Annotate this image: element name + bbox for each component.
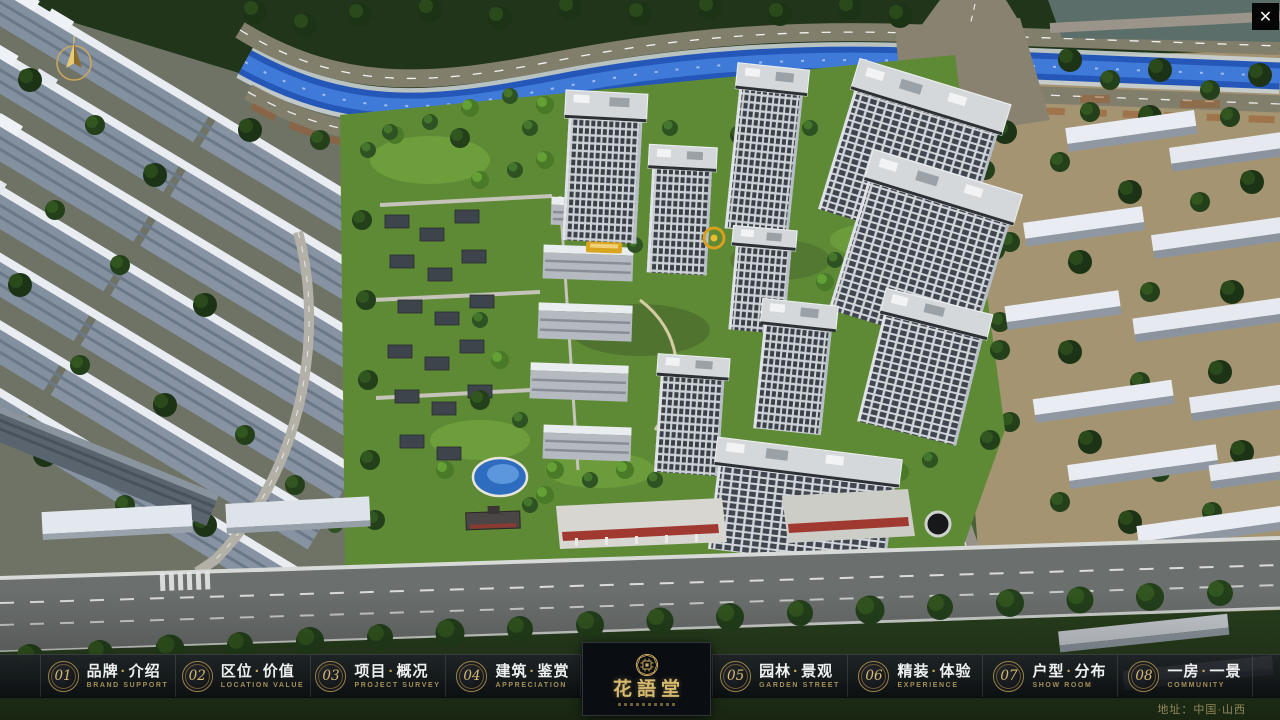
- menu-number-badge: 06: [858, 661, 889, 692]
- menu-number-badge: 01: [48, 661, 79, 692]
- menu-label-right: 概况: [396, 663, 428, 680]
- logo-title: 花語堂: [608, 679, 685, 699]
- menu-item-decoration[interactable]: 06 精装·体验 EXPERIENCE: [847, 655, 982, 697]
- menu-item-text: 精装·体验 EXPERIENCE: [897, 664, 971, 689]
- menu-label: 项目·概况: [354, 664, 428, 680]
- presentation-window: ✕ 01 品牌·介绍 BRAND SUPPORT 02 区位·价值 LOCATI…: [0, 0, 1280, 720]
- seal-icon: [635, 653, 659, 677]
- menu-label-left: 户型: [1032, 663, 1064, 680]
- menu-number-badge: 05: [720, 661, 751, 692]
- menu-item-text: 一房·一景 COMMUNITY: [1167, 664, 1241, 689]
- compass[interactable]: [50, 34, 98, 88]
- menu-separator: ·: [1065, 663, 1075, 680]
- menu-item-garden[interactable]: 05 园林·景观 GARDEN STREET: [712, 655, 847, 697]
- menu-number: 06: [865, 668, 882, 684]
- menu-label: 品牌·介绍: [87, 664, 161, 680]
- menu-number-badge: 04: [456, 661, 487, 692]
- logo-slot: 花語堂: [580, 655, 712, 697]
- menu-label-right: 鉴赏: [538, 663, 570, 680]
- menu-label-right: 体验: [940, 663, 972, 680]
- menu-separator: ·: [791, 663, 801, 680]
- menu-number-badge: 02: [182, 661, 213, 692]
- close-button[interactable]: ✕: [1252, 3, 1279, 30]
- menu-number: 01: [54, 668, 71, 684]
- menu-separator: ·: [119, 663, 129, 680]
- menu-sublabel: COMMUNITY: [1167, 682, 1225, 689]
- menu-item-architecture[interactable]: 04 建筑·鉴赏 APPRECIATION: [445, 655, 580, 697]
- menu-number: 07: [1000, 668, 1017, 684]
- menu-label-right: 分布: [1075, 663, 1107, 680]
- menu-label: 区位·价值: [221, 664, 295, 680]
- menu-separator: ·: [253, 663, 263, 680]
- address-label: 地址：中国·山西: [1157, 701, 1246, 717]
- menu-sublabel: GARDEN STREET: [759, 682, 840, 689]
- close-icon: ✕: [1259, 7, 1272, 26]
- menu-sublabel: EXPERIENCE: [897, 682, 958, 689]
- menu-item-text: 品牌·介绍 BRAND SUPPORT: [87, 664, 169, 689]
- menu-item-text: 项目·概况 PROJECT SURVEY: [354, 664, 440, 689]
- menu-label-left: 项目: [354, 663, 386, 680]
- menu-label-left: 精装: [897, 663, 929, 680]
- aerial-render: [0, 0, 1280, 720]
- menu-label: 精装·体验: [897, 664, 971, 680]
- menu-item-text: 建筑·鉴赏 APPRECIATION: [495, 664, 569, 689]
- menu-spacer: [0, 655, 40, 697]
- pool: [473, 458, 527, 496]
- menu-sublabel: SHOW ROOM: [1032, 682, 1092, 689]
- menu-label: 园林·景观: [759, 664, 833, 680]
- menu-separator: ·: [528, 663, 538, 680]
- compass-icon: [50, 34, 98, 88]
- menu-item-text: 园林·景观 GARDEN STREET: [759, 664, 840, 689]
- menu-label-right: 介绍: [129, 663, 161, 680]
- menu-number: 04: [463, 668, 480, 684]
- menu-sublabel: APPRECIATION: [495, 682, 567, 689]
- menu-item-project[interactable]: 03 项目·概况 PROJECT SURVEY: [310, 655, 445, 697]
- menu-item-location[interactable]: 02 区位·价值 LOCATION VALUE: [175, 655, 310, 697]
- menu-number: 05: [727, 668, 744, 684]
- menu-separator: ·: [1200, 663, 1210, 680]
- menu-item-floorplan[interactable]: 07 户型·分布 SHOW ROOM: [982, 655, 1117, 697]
- menu-label: 建筑·鉴赏: [495, 664, 569, 680]
- logo-subtext: [618, 703, 676, 706]
- menu-label-left: 区位: [221, 663, 253, 680]
- menu-number-badge: 07: [993, 661, 1024, 692]
- menu-label: 一房·一景: [1167, 664, 1241, 680]
- menu-number: 08: [1135, 668, 1152, 684]
- menu-label-left: 品牌: [87, 663, 119, 680]
- bottom-menu-bar: 01 品牌·介绍 BRAND SUPPORT 02 区位·价值 LOCATION…: [0, 654, 1280, 698]
- menu-label-right: 景观: [801, 663, 833, 680]
- menu-label-left: 建筑: [495, 663, 527, 680]
- menu-label-right: 一景: [1210, 663, 1242, 680]
- menu-item-text: 户型·分布 SHOW ROOM: [1032, 664, 1106, 689]
- map-viewport[interactable]: [0, 0, 1280, 720]
- menu-number: 03: [322, 668, 339, 684]
- menu-number-badge: 03: [315, 661, 346, 692]
- menu-label: 户型·分布: [1032, 664, 1106, 680]
- menu-sublabel: PROJECT SURVEY: [354, 682, 440, 689]
- menu-item-text: 区位·价值 LOCATION VALUE: [221, 664, 305, 689]
- menu-separator: ·: [386, 663, 396, 680]
- menu-label-left: 园林: [759, 663, 791, 680]
- menu-sublabel: LOCATION VALUE: [221, 682, 305, 689]
- menu-separator: ·: [930, 663, 940, 680]
- menu-item-brand[interactable]: 01 品牌·介绍 BRAND SUPPORT: [40, 655, 175, 697]
- menu-sublabel: BRAND SUPPORT: [87, 682, 169, 689]
- menu-label-left: 一房: [1167, 663, 1199, 680]
- menu-spacer: [1252, 655, 1280, 697]
- menu-item-view[interactable]: 08 一房·一景 COMMUNITY: [1117, 655, 1252, 697]
- menu-label-right: 价值: [263, 663, 295, 680]
- menu-number: 02: [189, 668, 206, 684]
- menu-number-badge: 08: [1128, 661, 1159, 692]
- project-logo[interactable]: 花語堂: [582, 642, 711, 716]
